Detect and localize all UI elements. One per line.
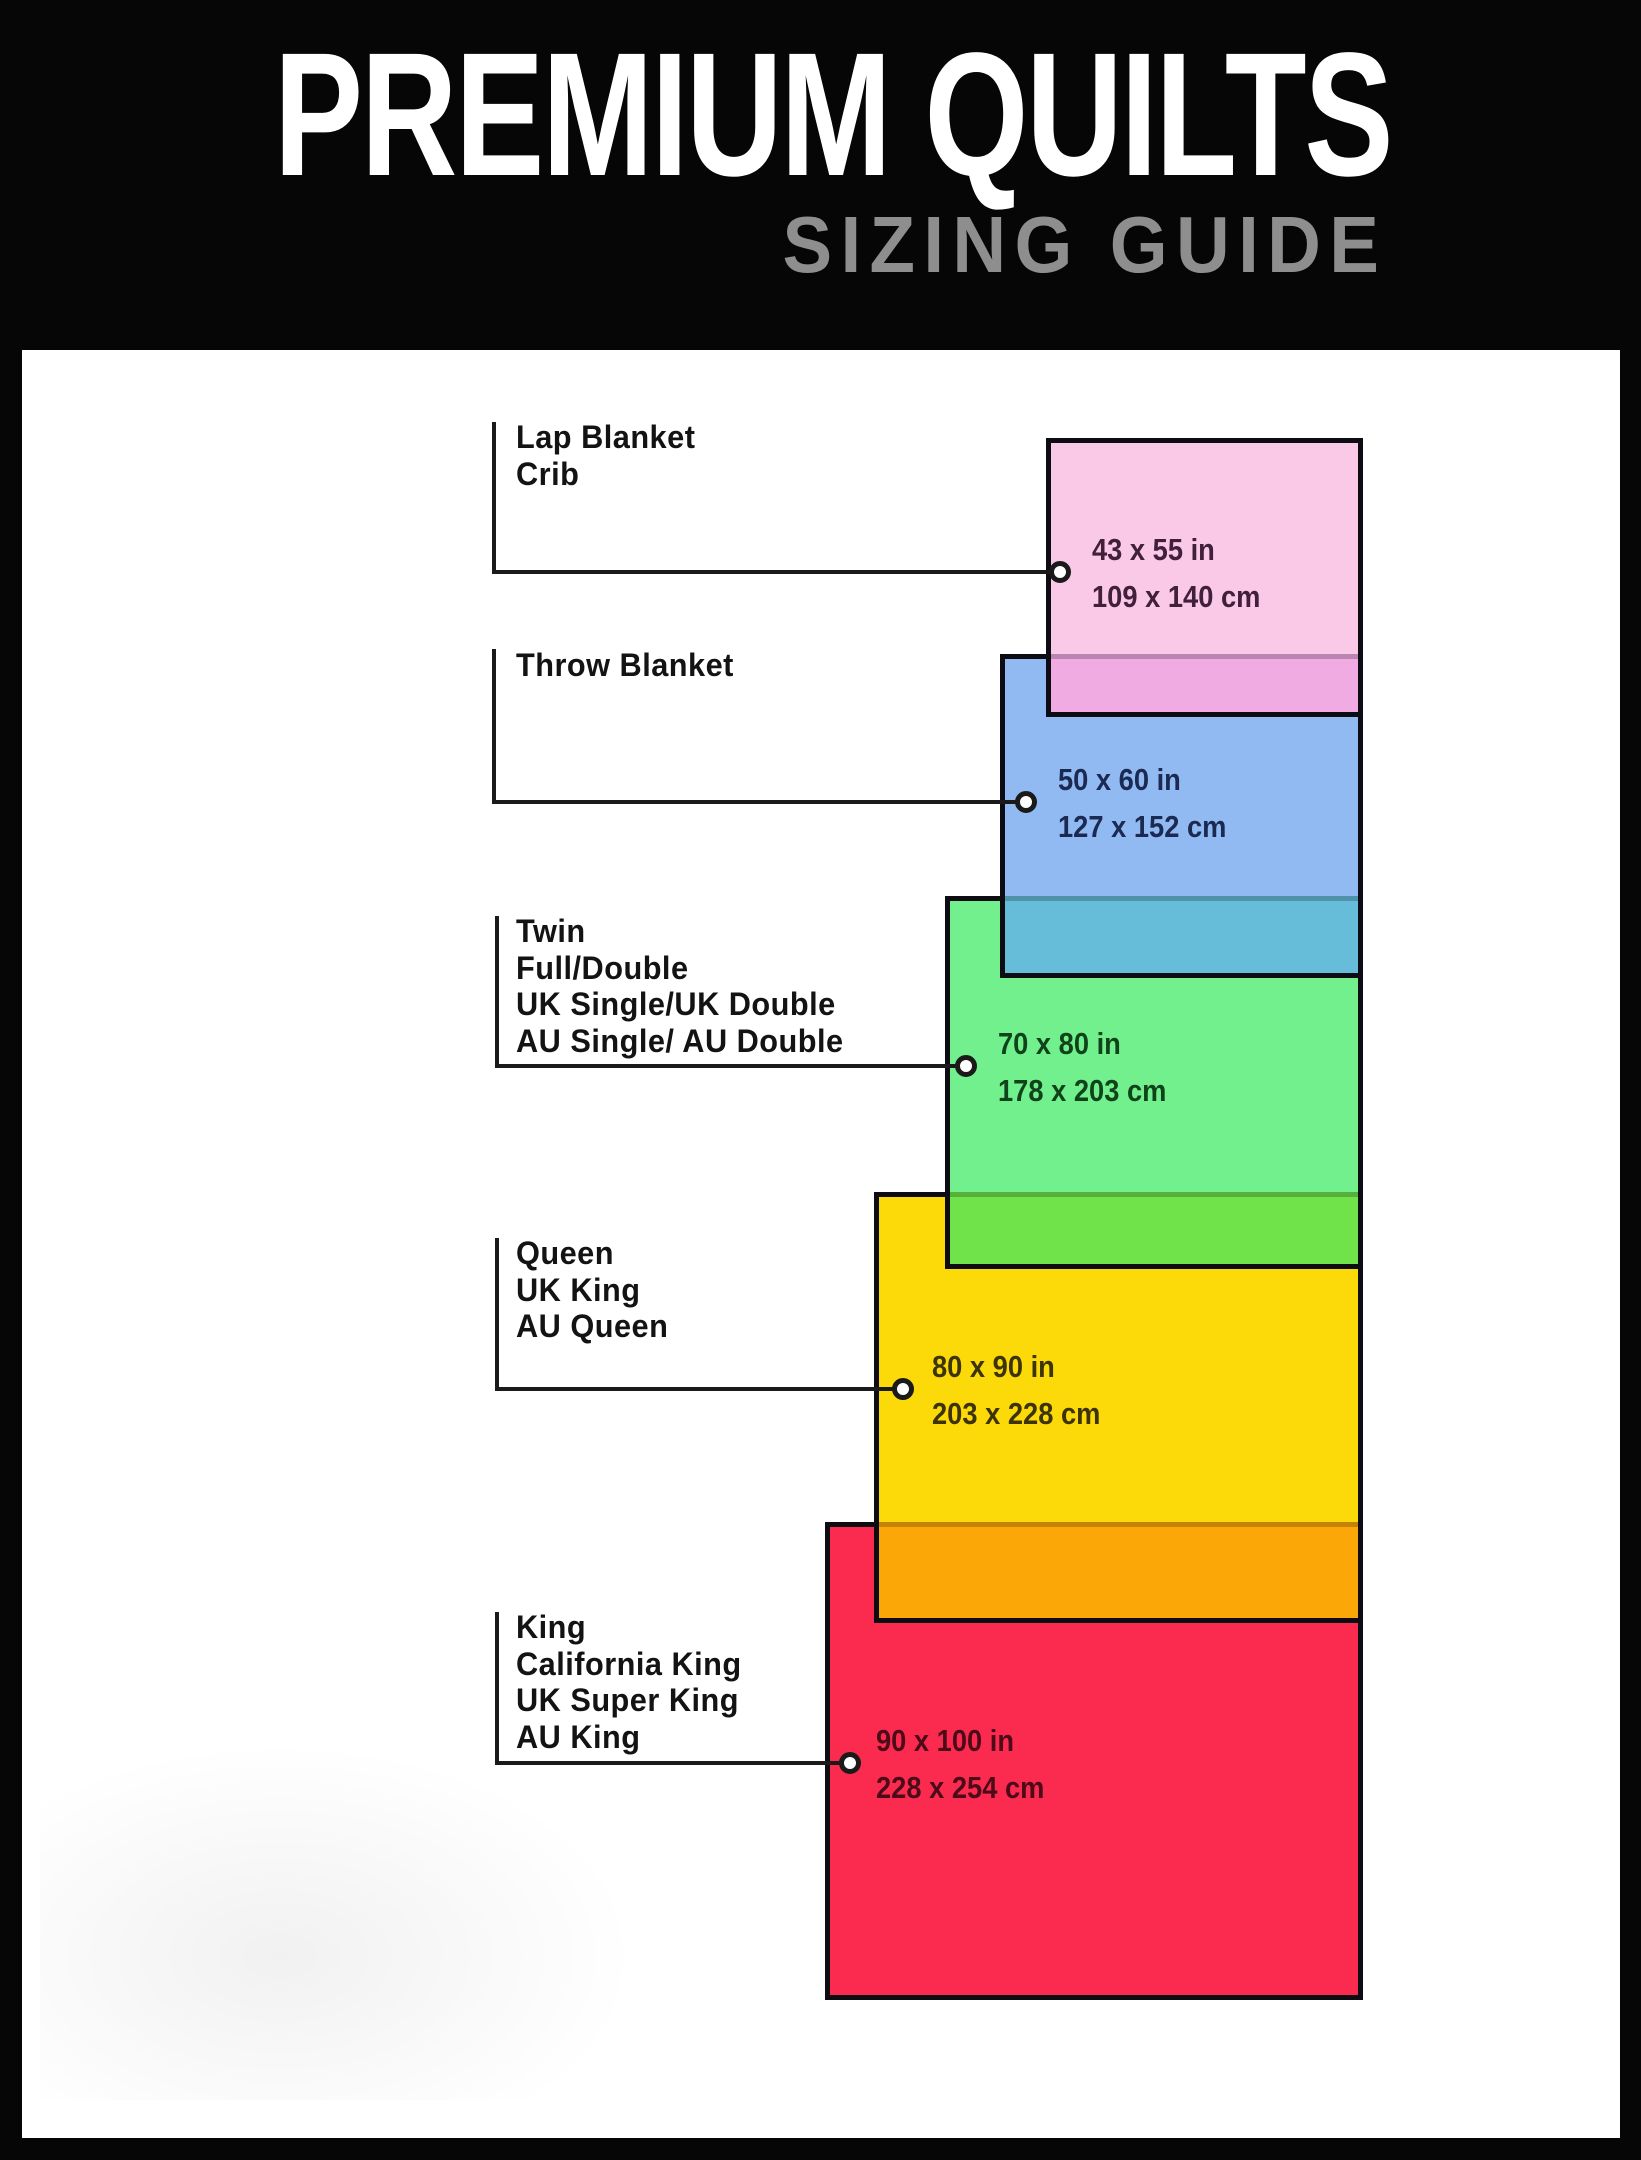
connector-hline-king bbox=[495, 1761, 852, 1765]
dims-throw-cm: 127 x 152 cm bbox=[1058, 803, 1226, 850]
overlap-band-queen-over-king bbox=[879, 1522, 1358, 1618]
dims-king: 90 x 100 in 228 x 254 cm bbox=[876, 1717, 1044, 1811]
connector-hline-throw bbox=[492, 800, 1028, 804]
dims-king-cm: 228 x 254 cm bbox=[876, 1764, 1044, 1811]
connector-hline-lap bbox=[492, 570, 1062, 574]
dims-queen: 80 x 90 in 203 x 228 cm bbox=[932, 1343, 1100, 1437]
corner-shadow bbox=[40, 1740, 640, 2100]
label-twin: Twin Full/Double UK Single/UK Double AU … bbox=[516, 913, 844, 1059]
page-title: PREMIUM QUILTS bbox=[274, 34, 1391, 196]
label-lap-blanket: Lap Blanket Crib bbox=[516, 419, 695, 492]
connector-dot-king bbox=[839, 1752, 861, 1774]
connector-vline-throw bbox=[492, 649, 496, 804]
connector-dot-twin bbox=[955, 1055, 977, 1077]
connector-dot-throw bbox=[1015, 791, 1037, 813]
dims-queen-inches: 80 x 90 in bbox=[932, 1343, 1100, 1390]
dims-lap-cm: 109 x 140 cm bbox=[1092, 573, 1260, 620]
label-king: King California King UK Super King AU Ki… bbox=[516, 1609, 742, 1755]
connector-vline-queen bbox=[495, 1238, 499, 1391]
dims-twin: 70 x 80 in 178 x 203 cm bbox=[998, 1020, 1166, 1114]
connector-dot-lap bbox=[1049, 561, 1071, 583]
overlap-band-lap-over-throw bbox=[1051, 654, 1358, 712]
connector-vline-king bbox=[495, 1612, 499, 1765]
label-queen: Queen UK King AU Queen bbox=[516, 1235, 668, 1345]
dims-lap-inches: 43 x 55 in bbox=[1092, 526, 1260, 573]
dims-lap-blanket: 43 x 55 in 109 x 140 cm bbox=[1092, 526, 1260, 620]
overlap-band-twin-over-queen bbox=[950, 1192, 1358, 1264]
connector-hline-queen bbox=[495, 1387, 905, 1391]
dims-queen-cm: 203 x 228 cm bbox=[932, 1390, 1100, 1437]
header: PREMIUM QUILTS SIZING GUIDE bbox=[0, 34, 1391, 286]
page-subtitle: SIZING GUIDE bbox=[23, 204, 1387, 286]
connector-dot-queen bbox=[892, 1378, 914, 1400]
infographic-canvas: PREMIUM QUILTS SIZING GUIDE Lap Blanket … bbox=[0, 0, 1641, 2160]
connector-hline-twin bbox=[495, 1064, 968, 1068]
label-throw-blanket: Throw Blanket bbox=[516, 647, 734, 684]
connector-vline-twin bbox=[495, 916, 499, 1068]
dims-throw-blanket: 50 x 60 in 127 x 152 cm bbox=[1058, 756, 1226, 850]
dims-throw-inches: 50 x 60 in bbox=[1058, 756, 1226, 803]
dims-twin-inches: 70 x 80 in bbox=[998, 1020, 1166, 1067]
dims-twin-cm: 178 x 203 cm bbox=[998, 1067, 1166, 1114]
overlap-band-throw-over-twin bbox=[1005, 896, 1358, 973]
connector-vline-lap bbox=[492, 422, 496, 574]
dims-king-inches: 90 x 100 in bbox=[876, 1717, 1044, 1764]
